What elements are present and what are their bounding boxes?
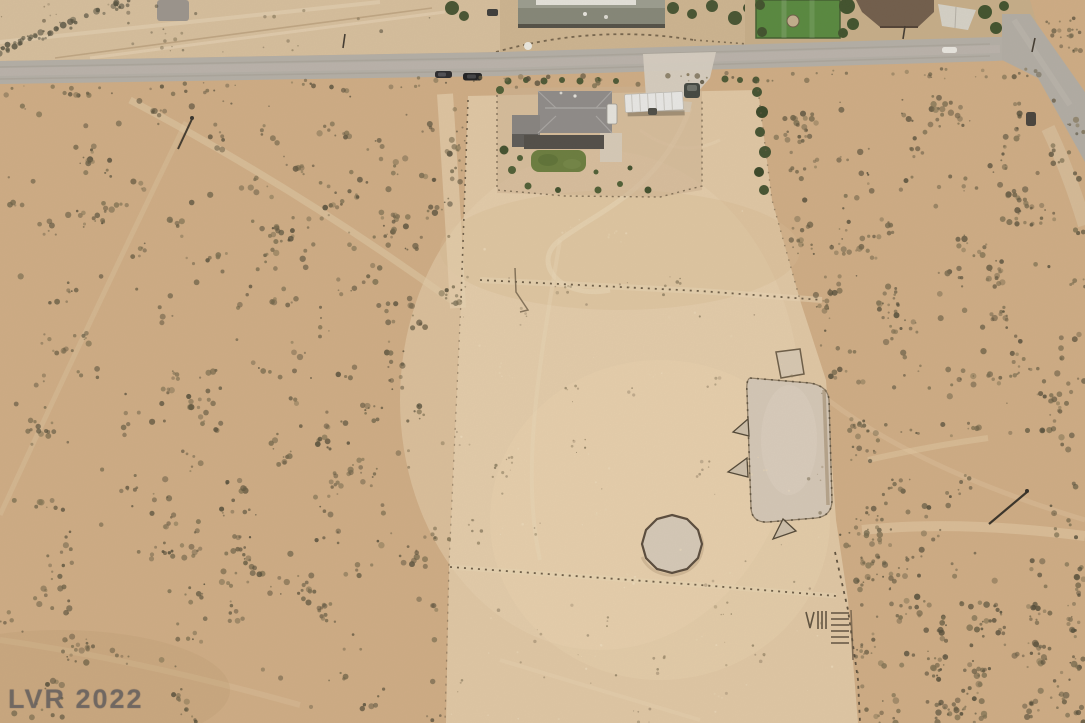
aerial-photo-canvas	[0, 0, 1085, 723]
film-grain-overlay	[0, 0, 1085, 723]
aerial-photo: LVR 2022	[0, 0, 1085, 723]
mls-watermark: LVR 2022	[8, 684, 144, 715]
